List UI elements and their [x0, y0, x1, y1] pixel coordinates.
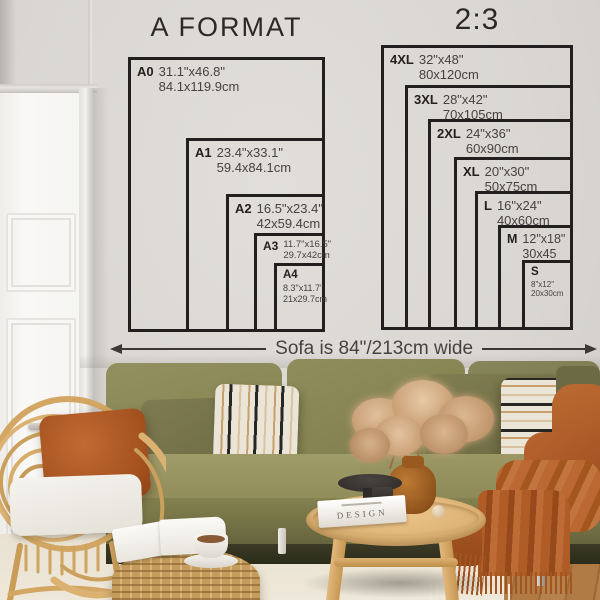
- size-cm: 29.7x42cm: [283, 250, 331, 261]
- size-inches: 23.4"x33.1": [217, 145, 291, 160]
- size-inches: 8"x12": [531, 280, 554, 289]
- size-code: A1: [195, 145, 212, 176]
- size-cm: 21x29.7cm: [283, 294, 327, 304]
- size-cm: 80x120cm: [419, 67, 479, 82]
- arrow-left-icon: [110, 344, 122, 354]
- size-inches: 32"x48": [419, 52, 479, 67]
- size-cm: 84.1x119.9cm: [159, 79, 240, 94]
- size-code: A4: [283, 269, 320, 283]
- vase-neck: [402, 456, 424, 468]
- size-box-s: S 8"x12" 20x30cm: [522, 260, 573, 330]
- arrow-line: [122, 348, 266, 350]
- size-box-a4: A4 8.3"x11.7" 21x29.7cm: [274, 263, 325, 332]
- flower-cluster: [350, 428, 390, 462]
- size-inches: 20"x30": [485, 164, 538, 179]
- wall-molding-vertical: [88, 0, 92, 84]
- size-code: A2: [235, 201, 252, 232]
- book-spine-title: DESIGN: [318, 506, 406, 522]
- size-inches: 11.7"x16.5": [283, 239, 331, 250]
- size-cm: 59.4x84.1cm: [217, 160, 291, 175]
- size-inches: 28"x42": [443, 92, 503, 107]
- size-cm: 60x90cm: [466, 141, 519, 156]
- size-code: A0: [137, 64, 154, 95]
- a-format-title: A FORMAT: [128, 12, 325, 43]
- size-inches: 24"x36": [466, 126, 519, 141]
- size-code: L: [484, 198, 492, 229]
- size-code: 4XL: [390, 52, 414, 83]
- table-brace: [334, 558, 458, 567]
- size-cm: 42x59.4cm: [257, 216, 323, 231]
- wall-art-size-guide-image: A FORMAT A0 31.1"x46.8" 84.1x119.9cm A1 …: [0, 0, 600, 600]
- arrow-line: [482, 348, 585, 350]
- size-code: S: [531, 266, 568, 280]
- flower-cluster: [420, 414, 468, 454]
- door-panel: [6, 213, 76, 292]
- living-room-scene: DESIGN: [0, 358, 600, 600]
- throw-drape: [478, 490, 570, 576]
- size-code: 2XL: [437, 126, 461, 157]
- size-inches: 8.3"x11.7": [283, 283, 323, 293]
- size-inches: 16"x24": [497, 198, 550, 213]
- size-code: A3: [263, 239, 278, 261]
- size-code: M: [507, 232, 517, 262]
- arrow-right-icon: [585, 344, 597, 354]
- coffee-cup: [194, 534, 228, 558]
- size-inches: 31.1"x46.8": [159, 64, 240, 79]
- book-spine-line: [341, 502, 381, 507]
- sofa-leg: [278, 528, 286, 554]
- size-cm: 20x30cm: [531, 289, 563, 298]
- wood-ball: [432, 505, 445, 518]
- size-inches: 12"x18": [522, 232, 565, 247]
- size-inches: 16.5"x23.4": [257, 201, 323, 216]
- ratio-2-3-title: 2:3: [381, 3, 573, 37]
